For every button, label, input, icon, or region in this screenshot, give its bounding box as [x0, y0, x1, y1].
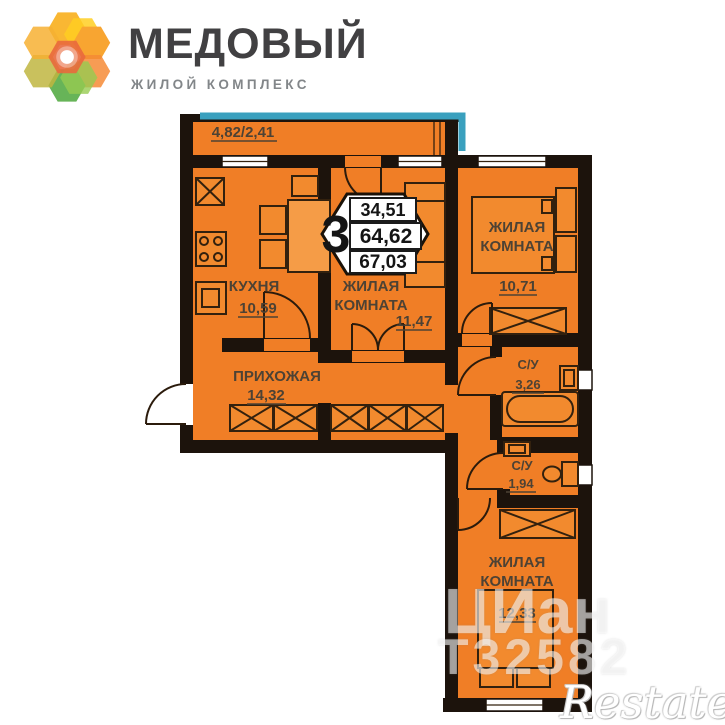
kitchen-sink	[196, 282, 226, 314]
hallway-area: 14,32	[247, 387, 285, 404]
chair	[260, 240, 286, 268]
toilet-label: С/У	[511, 458, 533, 473]
floor-plan: 4,82/2,41 КУХНЯ 10,59 ПРИХОЖАЯ 14,32 ЖИЛ…	[0, 0, 725, 725]
living-right-area: 10,71	[499, 278, 537, 295]
living-center-label-2: КОМНАТА	[334, 297, 407, 314]
badge-living-area: 34,51	[360, 200, 405, 220]
bathroom-niche	[578, 370, 592, 390]
opening-entrance	[180, 384, 193, 425]
restate-watermark: Restate	[560, 676, 725, 725]
living-right-label-2: КОМНАТА	[480, 238, 553, 255]
toilet-area: 1,94	[508, 476, 534, 491]
kitchen-label: КУХНЯ	[229, 278, 279, 295]
opening-bathroom-door	[490, 357, 502, 395]
hallway-label: ПРИХОЖАЯ	[233, 368, 321, 385]
bathroom-sink	[560, 366, 578, 390]
living-center-area: 11,47	[396, 313, 433, 330]
apartment-summary-badge: 3 34,51 64,62 67,03	[322, 194, 428, 274]
bathroom-area: 3,26	[515, 377, 540, 392]
kitchen-cabinet	[196, 178, 224, 205]
hallway-wardrobes	[230, 405, 443, 431]
nightstand	[556, 236, 576, 272]
wall-hall-stub	[318, 403, 331, 440]
badge-total-area: 67,03	[359, 252, 407, 273]
wardrobe-bottom-room	[500, 510, 575, 538]
opening-balcony-door	[345, 156, 381, 167]
balcony-label: 4,82/2,41	[212, 124, 275, 141]
living-center-label-1: ЖИЛАЯ	[342, 278, 399, 295]
wall-below-toilet	[497, 495, 578, 508]
wardrobe-living-right	[490, 308, 566, 334]
toilet-sink	[504, 442, 530, 456]
bathroom-label: С/У	[517, 357, 539, 372]
badge-rooms-count: 3	[322, 206, 351, 264]
wall-upper-bottom	[180, 440, 458, 453]
kitchen-area: 10,59	[239, 300, 277, 317]
living-bottom-label-1: ЖИЛАЯ	[488, 554, 545, 571]
page: МЕДОВЫЙ ЖИЛОЙ КОМПЛЕКС	[0, 0, 725, 725]
opening-living-door	[352, 351, 404, 362]
stove	[196, 232, 226, 266]
chair	[292, 176, 318, 196]
opening-kitchen-door	[264, 339, 310, 351]
bathtub	[502, 392, 578, 426]
opening-livingright-door	[462, 334, 492, 346]
toilet-niche	[578, 465, 592, 485]
chair	[260, 206, 286, 234]
nightstand	[556, 188, 576, 232]
living-right-label-1: ЖИЛАЯ	[488, 219, 545, 236]
opening-hall-corridor	[445, 385, 458, 433]
badge-area: 64,62	[360, 225, 413, 248]
